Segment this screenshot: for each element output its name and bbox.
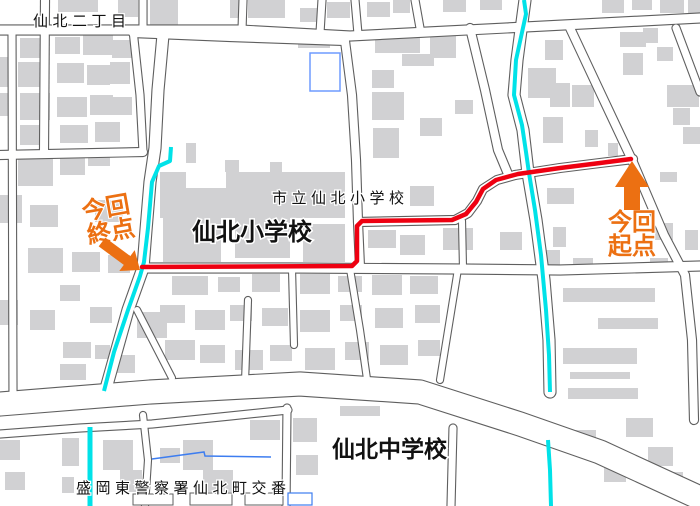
building [160, 305, 185, 323]
building [570, 372, 630, 379]
building [608, 143, 618, 156]
road [242, 0, 243, 30]
building [300, 310, 330, 332]
road [451, 428, 453, 506]
building [372, 92, 404, 120]
building [380, 345, 408, 365]
building [20, 38, 42, 58]
road [470, 28, 508, 174]
building [553, 227, 566, 247]
building [300, 8, 317, 22]
school-pool [310, 53, 340, 91]
building [58, 0, 98, 12]
road [292, 269, 294, 345]
building [563, 288, 655, 302]
building [110, 62, 130, 84]
building [0, 440, 20, 460]
building [250, 420, 280, 440]
building [90, 95, 113, 115]
road [245, 300, 248, 382]
building [368, 230, 396, 248]
building [418, 340, 440, 356]
building [400, 235, 425, 255]
elementary-official-label: 市立仙北小学校 [272, 190, 409, 207]
building [455, 100, 473, 114]
building [372, 70, 394, 88]
building [420, 118, 442, 136]
building [620, 32, 646, 47]
building [673, 108, 690, 125]
building [112, 40, 132, 58]
building [415, 305, 440, 323]
building [683, 127, 700, 144]
building [18, 158, 53, 186]
route-start-annotation: 今回 起点 [607, 208, 656, 260]
building [90, 307, 112, 323]
building [62, 477, 74, 493]
building [165, 340, 195, 360]
building [632, 0, 652, 10]
building [248, 0, 285, 18]
building [598, 318, 658, 329]
road [462, 221, 463, 268]
building [500, 232, 522, 250]
blue-court [288, 493, 312, 505]
building [367, 2, 390, 17]
building [568, 388, 638, 399]
waterway-east-lower [548, 440, 551, 506]
building [60, 125, 88, 143]
building [623, 53, 643, 75]
building [172, 276, 208, 295]
building [402, 54, 434, 66]
police-box-label: 盛岡東警察署仙北町交番 [76, 479, 291, 497]
building [685, 230, 698, 250]
route-start-arrow [615, 161, 649, 210]
building [626, 418, 653, 437]
building [296, 455, 318, 475]
building [293, 418, 317, 442]
building [543, 117, 563, 143]
building [550, 83, 570, 107]
building [55, 37, 80, 54]
building [410, 186, 434, 206]
building [375, 308, 403, 328]
building [572, 85, 594, 107]
building [225, 160, 239, 173]
road [0, 152, 143, 155]
building [480, 0, 502, 10]
building [5, 472, 25, 490]
building [300, 274, 330, 294]
building [430, 36, 456, 58]
building [270, 345, 292, 361]
building [443, 228, 473, 250]
building [60, 364, 86, 380]
building [660, 172, 677, 182]
building [393, 0, 410, 13]
building [657, 47, 673, 61]
building [262, 308, 288, 326]
building [545, 40, 563, 60]
building [218, 277, 240, 292]
building [547, 188, 574, 204]
route-start-line2: 起点 [607, 233, 656, 260]
building [410, 276, 438, 294]
road [440, 269, 458, 380]
building [95, 345, 110, 359]
building [112, 97, 132, 115]
building [83, 35, 113, 55]
building [373, 128, 399, 158]
map-canvas: 仙北二丁目 市立仙北小学校 仙北小学校 仙北中学校 盛岡東警察署仙北町交番 今回… [0, 0, 700, 506]
road [415, 0, 420, 28]
building [585, 130, 598, 147]
building [103, 440, 133, 470]
building [30, 205, 58, 227]
building [72, 252, 100, 272]
building [60, 285, 80, 301]
road [355, 0, 358, 34]
building [57, 97, 87, 117]
building [660, 0, 684, 13]
school-courtyard-notch [186, 172, 226, 188]
building [195, 310, 225, 330]
building [62, 438, 79, 466]
building [63, 342, 91, 358]
building [150, 0, 178, 26]
junior-high-label: 仙北中学校 [332, 436, 448, 462]
building [305, 348, 335, 370]
building [443, 0, 466, 12]
building [28, 248, 63, 273]
map-view: 仙北二丁目 市立仙北小学校 仙北小学校 仙北中学校 盛岡東警察署仙北町交番 今回… [0, 0, 700, 506]
building [186, 143, 196, 163]
building [57, 63, 84, 83]
building [372, 275, 402, 295]
building [87, 65, 110, 85]
building [643, 28, 658, 43]
building [327, 2, 350, 18]
road [12, 30, 13, 395]
route-start-line1: 今回 [608, 208, 656, 236]
building [95, 122, 120, 142]
building [30, 310, 55, 330]
building [252, 274, 280, 292]
road [320, 0, 322, 33]
building [563, 348, 637, 364]
building [602, 0, 624, 13]
building [183, 440, 213, 470]
building [340, 406, 380, 416]
elementary-school-label: 仙北小学校 [192, 218, 313, 246]
road [676, 28, 700, 92]
building [200, 345, 225, 363]
district-label: 仙北二丁目 [33, 13, 131, 30]
